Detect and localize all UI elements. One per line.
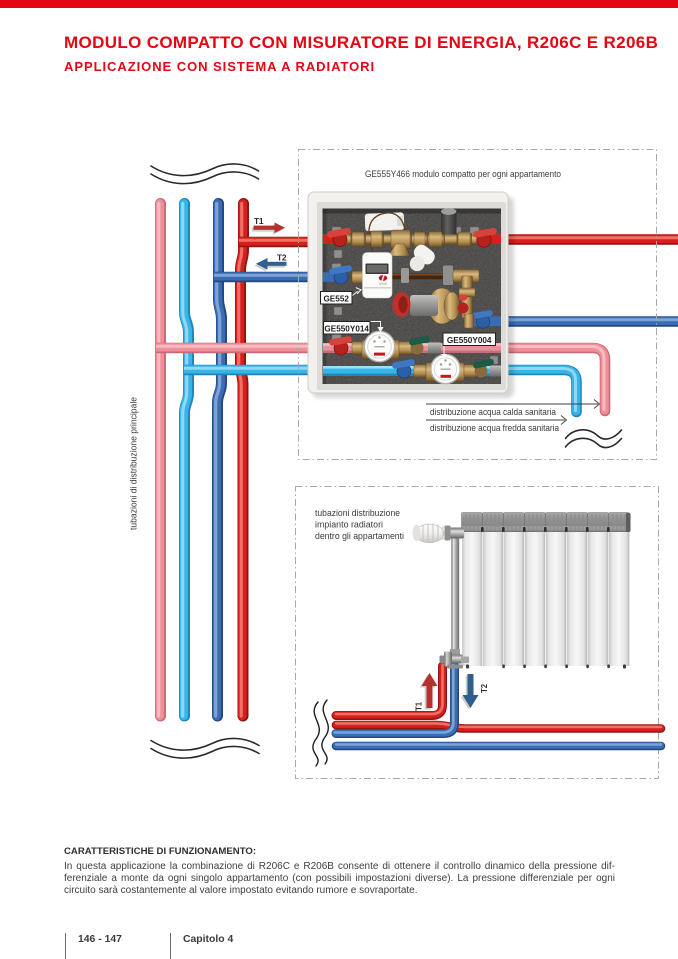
svg-text:tubazioni distribuzione: tubazioni distribuzione xyxy=(315,508,400,518)
svg-text:T1: T1 xyxy=(254,216,264,226)
svg-text:impianto radiatori: impianto radiatori xyxy=(315,520,383,530)
svg-text:T2: T2 xyxy=(480,683,489,693)
svg-text:T2: T2 xyxy=(277,252,287,262)
svg-text:GE555Y466 modulo compatto per: GE555Y466 modulo compatto per ogni appar… xyxy=(365,169,561,179)
svg-text:distribuzione acqua calda sani: distribuzione acqua calda sanitaria xyxy=(430,407,557,417)
svg-text:dentro gli appartamenti: dentro gli appartamenti xyxy=(315,531,404,541)
svg-text:tubazioni di distribuzione pri: tubazioni di distribuzione principale xyxy=(129,397,139,530)
svg-text:distribuzione acqua fredda san: distribuzione acqua fredda sanitaria xyxy=(430,423,560,433)
svg-text:T1: T1 xyxy=(415,701,424,711)
svg-text:GE550Y004: GE550Y004 xyxy=(447,336,492,345)
svg-text:GE550Y014: GE550Y014 xyxy=(324,324,369,333)
svg-text:GE552: GE552 xyxy=(323,294,349,303)
